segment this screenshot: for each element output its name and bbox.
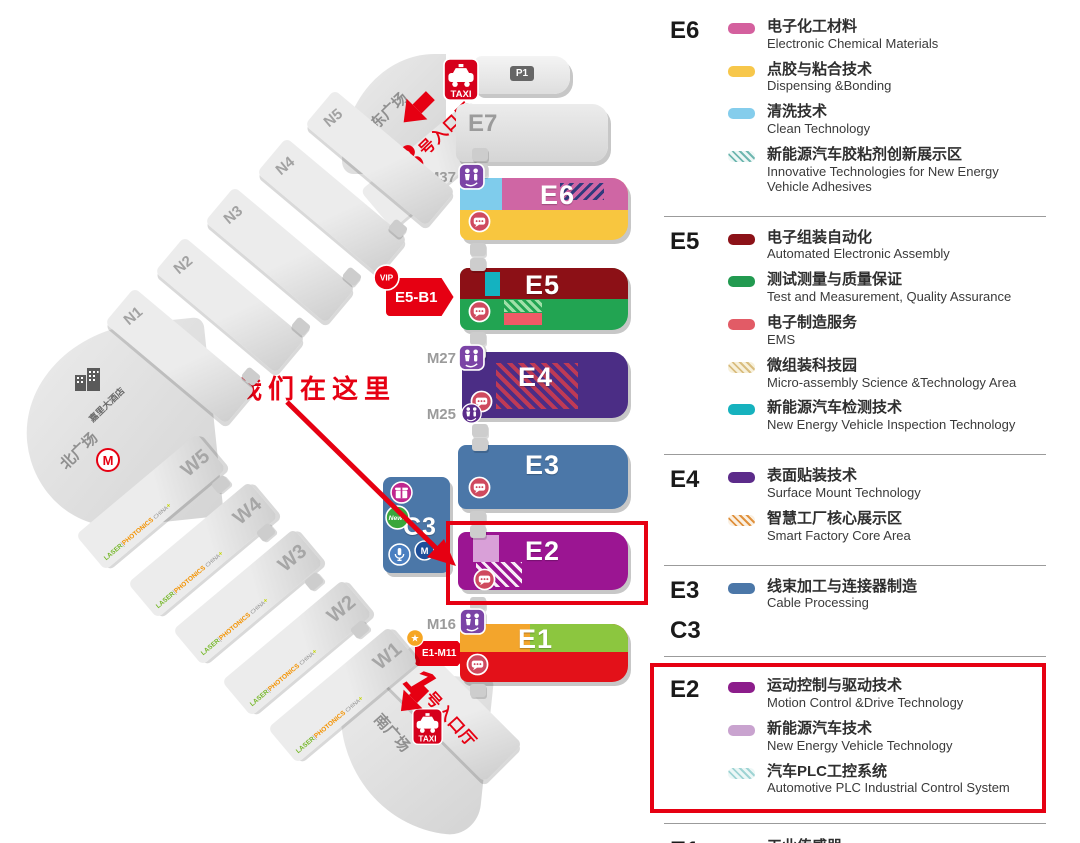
legend-swatch — [728, 682, 755, 693]
legend-item-en: Clean Technology — [767, 122, 870, 137]
legend-hall-label: E5 — [670, 229, 728, 255]
legend-item: 新能源汽车技术New Energy Vehicle Technology — [728, 720, 1036, 754]
legend-item: 测试测量与质量保证Test and Measurement, Quality A… — [728, 271, 1044, 305]
legend-item-en: Surface Mount Technology — [767, 486, 921, 501]
svg-text:TAXI: TAXI — [450, 89, 471, 100]
hall-e1-label: E1 — [518, 624, 553, 655]
hall-connector — [472, 438, 488, 451]
legend-swatch — [728, 725, 755, 736]
legend-swatch — [728, 23, 755, 34]
legend-item-zh: 新能源汽车检测技术 — [767, 399, 1015, 418]
legend-swatch-hatched — [728, 768, 755, 779]
speech-bubble-icon — [466, 653, 489, 681]
legend-swatch-hatched — [728, 515, 755, 526]
legend-item: 运动控制与驱动技术Motion Control &Drive Technolog… — [728, 677, 1036, 711]
restroom-icon-m16 — [459, 608, 486, 640]
legend-section-E2: E2运动控制与驱动技术Motion Control &Drive Technol… — [664, 671, 1038, 809]
svg-text:M: M — [421, 546, 429, 557]
hall-n1-label: N1 — [120, 303, 146, 328]
legend-item-en: Electronic Chemical Materials — [767, 37, 938, 52]
legend-item-zh: 工业传感器 — [767, 838, 871, 843]
legend-item-en: Motion Control &Drive Technology — [767, 696, 963, 711]
svg-text:★: ★ — [411, 634, 420, 645]
legend-item-zh: 智慧工厂核心展示区 — [767, 510, 911, 529]
restroom-icon-m27 — [458, 344, 485, 376]
legend-item-en: Dispensing &Bonding — [767, 79, 891, 94]
hall-w4-label: W4 — [229, 493, 267, 530]
vip-icon: VIP — [373, 264, 400, 296]
legend-item: 表面贴装技术Surface Mount Technology — [728, 467, 1044, 501]
expo-floorplan: { "map": { "we_are_here": "我们在这里", "taxi… — [0, 0, 1080, 843]
legend-item: 清洗技术Clean Technology — [728, 103, 1044, 137]
legend-section-E4: E4表面贴装技术Surface Mount Technology智慧工厂核心展示… — [664, 461, 1046, 565]
legend-item-en: Automotive PLC Industrial Control System — [767, 781, 1010, 796]
legend-hall-label: E3 — [670, 578, 728, 604]
legend-swatch — [728, 583, 755, 594]
microphone-icon — [388, 543, 411, 571]
legend-item: 工业传感器Industrial Sensors — [728, 838, 1044, 843]
legend-item-en: Micro-assembly Science &Technology Area — [767, 376, 1016, 391]
legend: E6电子化工材料Electronic Chemical Materials点胶与… — [664, 12, 1046, 843]
star-icon: ★ — [406, 629, 424, 652]
hall-e5-label: E5 — [525, 270, 560, 301]
hall-e6-label: E6 — [540, 180, 575, 211]
e5-hatch-zone — [504, 300, 542, 312]
legend-item-zh: 新能源汽车技术 — [767, 720, 953, 739]
svg-text:News: News — [389, 515, 407, 522]
hall-w1-label: W1 — [369, 638, 407, 675]
restroom-icon-m37 — [458, 163, 485, 195]
legend-item-zh: 电子组装自动化 — [767, 229, 950, 248]
legend-item-en: Smart Factory Core Area — [767, 529, 911, 544]
legend-item-zh: 电子化工材料 — [767, 18, 938, 37]
e5-nev-inspection-block — [485, 272, 500, 296]
legend-swatch — [728, 404, 755, 415]
legend-hall-label: E6 — [670, 18, 728, 44]
restroom-icon-m25 — [461, 403, 482, 429]
legend-swatch — [728, 472, 755, 483]
speech-bubble-icon — [468, 300, 491, 328]
legend-item-zh: 点胶与粘合技术 — [767, 61, 891, 80]
hall-n4-label: N4 — [272, 153, 298, 178]
marker-m27: M27 — [408, 350, 456, 367]
legend-section-E3C3: E3C3线束加工与连接器制造Cable Processing — [664, 572, 1046, 658]
legend-item-zh: 电子制造服务 — [767, 314, 857, 333]
legend-item: 新能源汽车胶粘剂创新展示区Innovative Technologies for… — [728, 146, 1044, 195]
legend-item: 电子制造服务EMS — [728, 314, 1044, 348]
legend-section-E6: E6电子化工材料Electronic Chemical Materials点胶与… — [664, 12, 1046, 217]
speech-bubble-icon — [468, 210, 491, 238]
legend-hall-label: E1 — [670, 838, 728, 843]
legend-item-zh: 测试测量与质量保证 — [767, 271, 1011, 290]
hall-n3-label: N3 — [220, 202, 246, 227]
legend-divider — [664, 823, 1046, 824]
legend-item-en: New Energy Vehicle Inspection Technology — [767, 418, 1015, 433]
taxi-icon-east: TAXI — [443, 58, 479, 106]
legend-item-zh: 表面贴装技术 — [767, 467, 921, 486]
hall-e4-label: E4 — [518, 362, 553, 393]
entrance-3-arrow-icon — [396, 88, 438, 135]
legend-item-zh: 线束加工与连接器制造 — [767, 578, 917, 597]
marker-m25: M25 — [408, 406, 456, 423]
legend-item-zh: 新能源汽车胶粘剂创新展示区 — [767, 146, 1044, 165]
legend-item: 智慧工厂核心展示区Smart Factory Core Area — [728, 510, 1044, 544]
hall-w2-label: W2 — [323, 591, 361, 628]
hall-connector — [472, 148, 488, 161]
hall-connector — [470, 243, 486, 256]
hotel-icon — [72, 366, 104, 397]
speech-bubble-icon — [473, 568, 496, 596]
legend-swatch — [728, 319, 755, 330]
hall-w5-label: W5 — [177, 445, 215, 482]
legend-item: 电子组装自动化Automated Electronic Assembly — [728, 229, 1044, 263]
legend-item-zh: 微组装科技园 — [767, 357, 1016, 376]
legend-item-zh: 清洗技术 — [767, 103, 870, 122]
legend-e2-highlight-box: E2运动控制与驱动技术Motion Control &Drive Technol… — [650, 663, 1046, 813]
we-are-here-label: 我们在这里 — [236, 369, 396, 406]
legend-item: 新能源汽车检测技术New Energy Vehicle Inspection T… — [728, 399, 1044, 433]
news-icon: News — [385, 505, 410, 535]
legend-section-E5: E5电子组装自动化Automated Electronic Assembly测试… — [664, 223, 1046, 455]
legend-item: 汽车PLC工控系统Automotive PLC Industrial Contr… — [728, 763, 1036, 797]
legend-hall-label: C3 — [670, 618, 728, 644]
legend-item: 线束加工与连接器制造Cable Processing — [728, 578, 1044, 612]
legend-item: 点胶与粘合技术Dispensing &Bonding — [728, 61, 1044, 95]
hall-n2-label: N2 — [170, 252, 196, 277]
legend-item: 微组装科技园Micro-assembly Science &Technology… — [728, 357, 1044, 391]
parking-p1-badge: P1 — [510, 66, 534, 81]
legend-item-en: Innovative Technologies for New Energy V… — [767, 165, 1044, 195]
legend-swatch — [728, 66, 755, 77]
hall-e3-label: E3 — [525, 450, 560, 481]
legend-swatch — [728, 276, 755, 287]
speech-bubble-icon — [468, 476, 491, 504]
entrance-1-arrow-icon — [394, 680, 432, 723]
legend-item-en: New Energy Vehicle Technology — [767, 739, 953, 754]
info-dot-icon: M — [414, 540, 435, 566]
legend-swatch — [728, 234, 755, 245]
legend-section-E1: E1工业传感器Industrial Sensors元器件制造Component … — [664, 832, 1046, 843]
legend-item-en: Automated Electronic Assembly — [767, 247, 950, 262]
e5-ems-block — [504, 313, 542, 325]
legend-item-en: Cable Processing — [767, 596, 917, 611]
legend-swatch-hatched — [728, 151, 755, 162]
metro-icon: M — [96, 448, 120, 472]
svg-text:VIP: VIP — [380, 273, 394, 283]
legend-hall-label: E4 — [670, 467, 728, 493]
legend-item: 电子化工材料Electronic Chemical Materials — [728, 18, 1044, 52]
legend-item-zh: 运动控制与驱动技术 — [767, 677, 963, 696]
svg-text:TAXI: TAXI — [418, 735, 436, 744]
legend-swatch-hatched — [728, 362, 755, 373]
legend-swatch — [728, 108, 755, 119]
hall-w3-label: W3 — [274, 540, 312, 577]
legend-item-en: Test and Measurement, Quality Assurance — [767, 290, 1011, 305]
legend-item-en: EMS — [767, 333, 857, 348]
hall-n5-label: N5 — [320, 105, 346, 130]
legend-item-zh: 汽车PLC工控系统 — [767, 763, 1010, 782]
hall-connector — [470, 684, 486, 697]
legend-hall-label: E2 — [670, 677, 728, 703]
hall-connector — [470, 258, 486, 271]
